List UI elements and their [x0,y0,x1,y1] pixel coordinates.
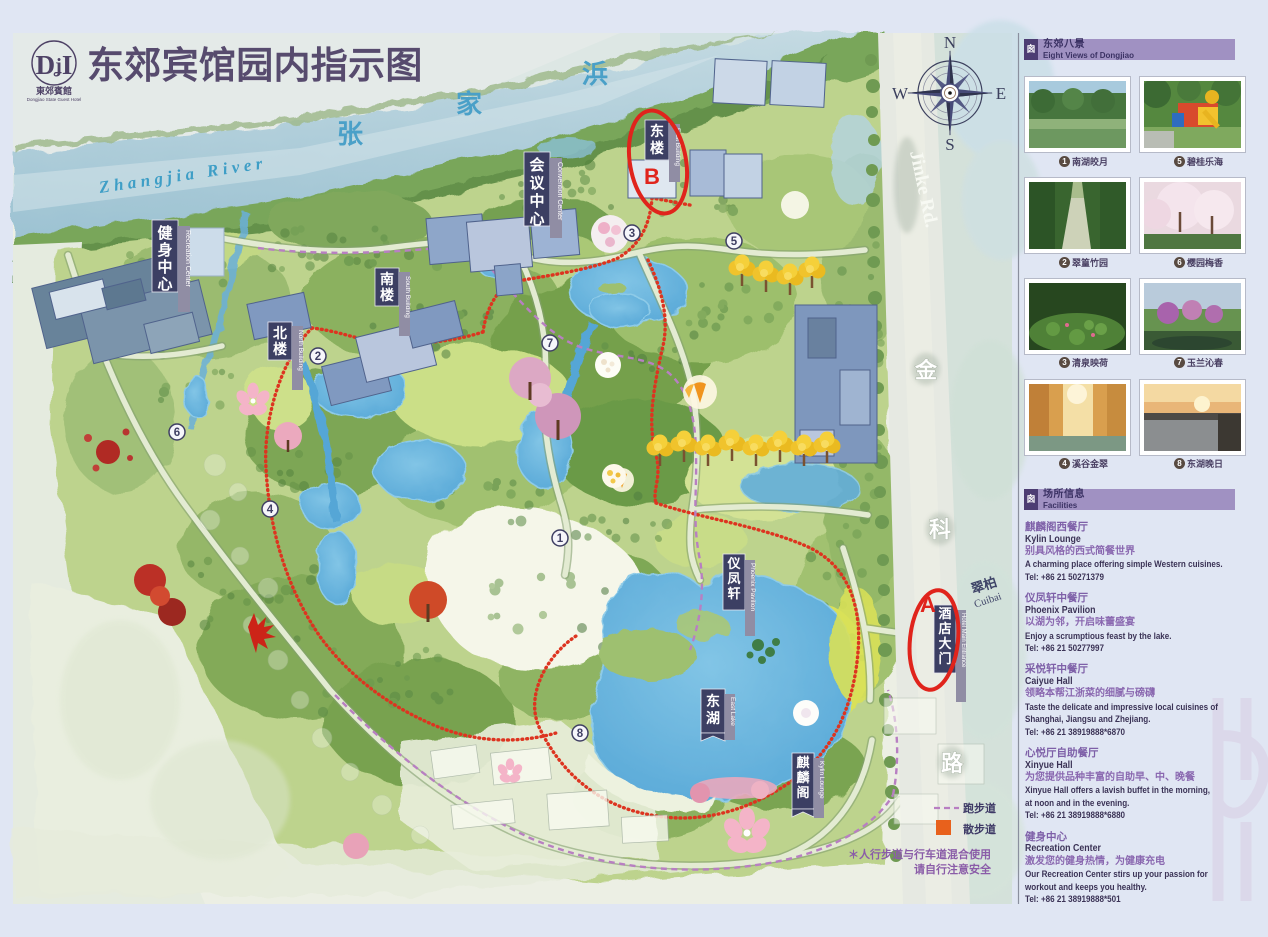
svg-text:东湖: 东湖 [706,693,720,726]
svg-text:仪凤轩: 仪凤轩 [726,556,741,601]
svg-text:B: B [644,164,660,189]
svg-text:东楼: 东楼 [650,123,664,156]
svg-text:E: E [996,84,1006,103]
svg-text:1: 1 [557,533,564,545]
svg-text:路: 路 [941,751,964,776]
svg-text:科: 科 [929,517,951,542]
svg-text:S: S [945,135,954,154]
svg-text:Hotel Main Entrance: Hotel Main Entrance [960,613,966,668]
svg-text:麒麟阁: 麒麟阁 [796,755,810,800]
svg-text:Phoenix Pavilion: Phoenix Pavilion [749,563,756,611]
svg-text:＊人行步道与行车道混合使用: ＊人行步道与行车道混合使用 [848,847,991,861]
svg-text:跑步道: 跑步道 [963,801,996,815]
svg-text:4: 4 [267,504,274,516]
svg-text:Recreation Center: Recreation Center [184,230,191,287]
svg-text:8: 8 [577,728,584,740]
svg-text:W: W [892,84,909,103]
svg-text:N: N [944,33,956,52]
svg-text:7: 7 [547,338,553,350]
svg-text:Kylin Lounge: Kylin Lounge [818,761,825,799]
svg-text:东郊宾馆园内指示图: 东郊宾馆园内指示图 [87,45,423,86]
svg-text:South Building: South Building [404,276,411,318]
svg-text:张: 张 [337,119,364,149]
svg-text:酒店大门: 酒店大门 [938,606,951,666]
svg-text:DʝI: DʝI [36,50,73,80]
svg-text:North Building: North Building [297,330,304,371]
svg-text:A: A [920,592,936,617]
svg-text:5: 5 [731,236,738,248]
svg-text:南楼: 南楼 [380,271,394,303]
svg-text:北楼: 北楼 [273,325,287,357]
svg-text:East Lake: East Lake [729,697,736,726]
svg-text:浜: 浜 [582,59,608,89]
svg-text:Dongjiao State Guest Hotel: Dongjiao State Guest Hotel [27,97,82,102]
svg-text:散步道: 散步道 [963,822,996,836]
svg-text:東郊賓館: 東郊賓館 [36,85,72,96]
svg-text:Convention Center: Convention Center [556,162,563,221]
svg-text:6: 6 [174,427,180,439]
svg-text:金: 金 [914,358,938,383]
svg-text:请自行注意安全: 请自行注意安全 [914,862,992,876]
svg-text:家: 家 [456,89,482,119]
svg-text:2: 2 [315,351,321,363]
svg-text:健身中心: 健身中心 [157,224,172,293]
svg-text:3: 3 [629,228,635,240]
